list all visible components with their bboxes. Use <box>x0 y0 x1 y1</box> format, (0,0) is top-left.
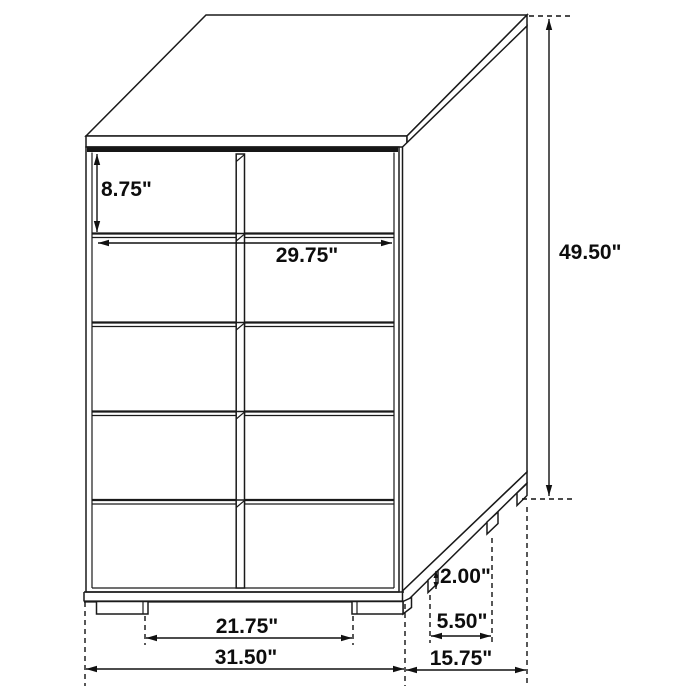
dimension-foot-height: 2.00" <box>436 565 491 589</box>
dimension-label-front-width: 29.75" <box>276 244 339 267</box>
drawer-handle <box>236 412 244 504</box>
dimension-side-foot-spacing: 5.50" <box>431 610 491 636</box>
dimension-front-foot-spacing: 21.75" <box>146 615 352 638</box>
drawer-handle <box>236 154 244 236</box>
dimension-label-foot-height: 2.00" <box>440 565 491 588</box>
drawer-handles <box>236 154 244 588</box>
front-top-rail <box>87 148 398 153</box>
front-foot-left <box>97 602 149 615</box>
dimension-label-side-foot-spacing: 5.50" <box>437 610 488 633</box>
dimension-label-drawer-height: 8.75" <box>101 178 152 201</box>
dimension-diagram: 8.75" 29.75" 49.50" 2.00" 5.50" 21.75" <box>0 0 700 700</box>
dimension-overall-depth: 15.75" <box>406 647 526 670</box>
dimension-label-overall-width: 31.50" <box>215 646 278 669</box>
chest-front-face <box>84 147 412 614</box>
chest-line-art <box>84 15 527 614</box>
dimension-label-front-foot-spacing: 21.75" <box>216 615 279 638</box>
dimension-label-overall-height: 49.50" <box>559 241 622 264</box>
drawer-handle <box>236 323 244 415</box>
drawer-handle <box>236 234 244 326</box>
dimension-overall-width: 31.50" <box>86 646 404 669</box>
dimension-label-overall-depth: 15.75" <box>430 647 493 670</box>
chest-base <box>84 592 412 614</box>
product-dimension-image: 8.75" 29.75" 49.50" 2.00" 5.50" 21.75" <box>0 0 700 700</box>
front-foot-right <box>352 602 403 615</box>
dimension-overall-height: 49.50" <box>549 19 622 496</box>
top-front-edge <box>86 136 407 147</box>
drawer-handle <box>236 500 244 588</box>
